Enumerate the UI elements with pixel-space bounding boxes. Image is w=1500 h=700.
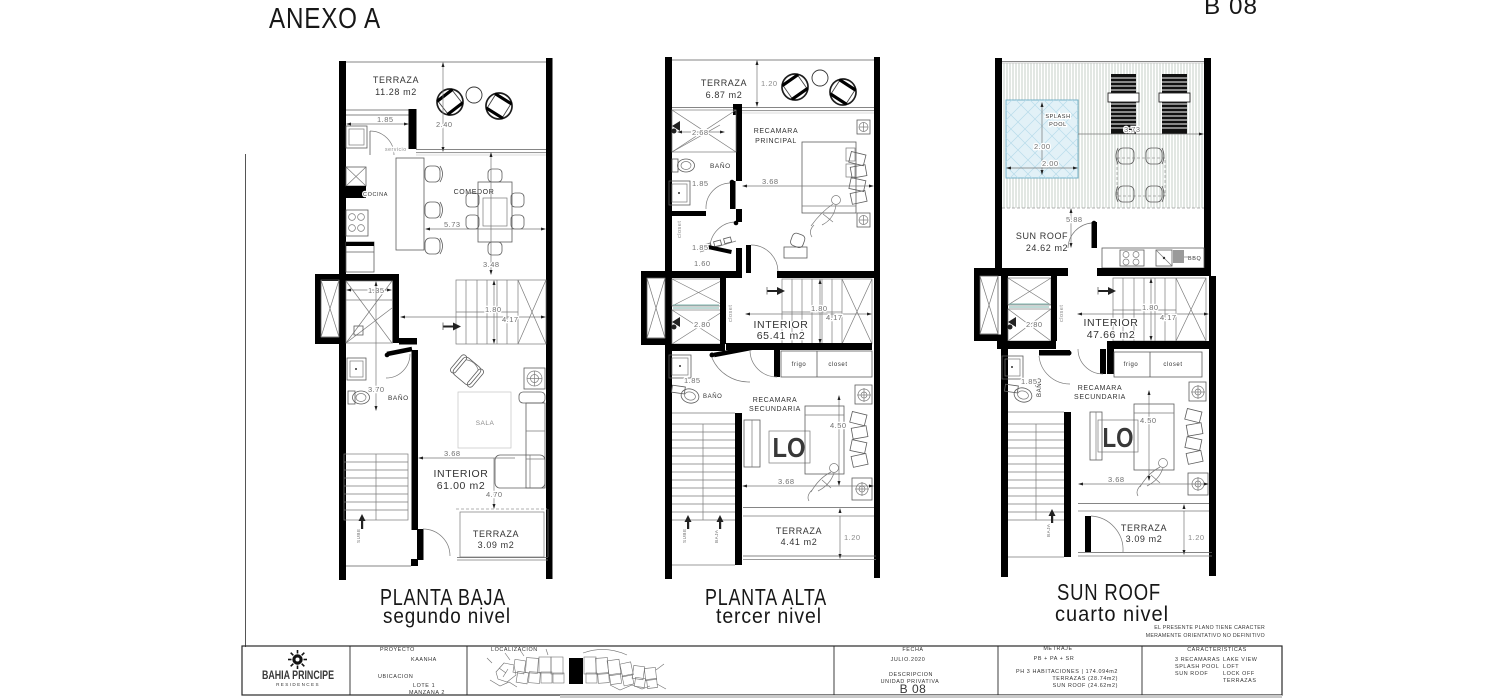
svg-text:INTERIOR: INTERIOR (434, 468, 489, 480)
svg-text:3.09 m2: 3.09 m2 (1126, 534, 1163, 544)
svg-text:6.87 m2: 6.87 m2 (706, 90, 743, 100)
svg-text:METRAJE: METRAJE (1043, 646, 1072, 652)
svg-text:RECAMARA: RECAMARA (1078, 385, 1122, 392)
svg-text:SPLASH POOL: SPLASH POOL (1175, 664, 1219, 670)
svg-text:61.00 m2: 61.00 m2 (437, 480, 486, 492)
svg-text:TERRAZA: TERRAZA (701, 78, 747, 88)
svg-text:COMEDOR: COMEDOR (454, 189, 495, 196)
svg-text:3.68: 3.68 (444, 449, 461, 458)
svg-text:2.00: 2.00 (1042, 159, 1059, 168)
svg-text:closet: closet (828, 362, 847, 368)
svg-text:JULIO.2020: JULIO.2020 (891, 657, 926, 663)
svg-text:ANEXO A: ANEXO A (269, 3, 381, 35)
svg-text:1.85: 1.85 (692, 243, 709, 252)
svg-text:LAKE VIEW: LAKE VIEW (1223, 657, 1258, 663)
svg-text:4.50: 4.50 (1140, 416, 1157, 425)
svg-text:segundo nivel: segundo nivel (383, 605, 511, 628)
svg-text:servicio: servicio (385, 147, 407, 153)
svg-text:4.17: 4.17 (826, 313, 843, 322)
svg-text:CARACTERISTICAS: CARACTERISTICAS (1187, 647, 1247, 653)
svg-text:1.85: 1.85 (692, 179, 709, 188)
svg-text:MERAMENTE ORIENTATIVO NO DEFIN: MERAMENTE ORIENTATIVO NO DEFINITIVO (1146, 633, 1265, 639)
svg-text:1.80: 1.80 (1142, 303, 1159, 312)
svg-text:3.70: 3.70 (368, 385, 385, 394)
svg-text:5.88: 5.88 (1066, 215, 1083, 224)
svg-text:KAANHA: KAANHA (411, 657, 437, 663)
svg-text:3.73: 3.73 (1124, 125, 1141, 134)
svg-text:INTERIOR: INTERIOR (1084, 317, 1139, 329)
svg-text:SUN ROOF: SUN ROOF (1057, 579, 1161, 605)
svg-text:BAÑO: BAÑO (703, 393, 722, 400)
svg-text:1.60: 1.60 (694, 259, 711, 268)
svg-text:5.73: 5.73 (444, 220, 461, 229)
svg-text:BBQ: BBQ (1188, 256, 1202, 262)
svg-text:TERRAZAS: TERRAZAS (1223, 678, 1257, 684)
svg-text:cuarto nivel: cuarto nivel (1055, 603, 1169, 626)
svg-text:closet: closet (1163, 362, 1182, 368)
svg-text:3.68: 3.68 (762, 177, 779, 186)
svg-text:1.85: 1.85 (377, 115, 394, 124)
svg-text:1.20: 1.20 (761, 79, 778, 88)
svg-text:closet: closet (1059, 305, 1065, 322)
svg-text:1.80: 1.80 (811, 304, 828, 313)
svg-text:BAÑO: BAÑO (710, 161, 731, 170)
svg-text:1.85: 1.85 (1021, 377, 1038, 386)
svg-text:TERRAZA: TERRAZA (1121, 523, 1167, 533)
svg-text:PB + PA + SR: PB + PA + SR (1034, 656, 1075, 662)
svg-text:47.66 m2: 47.66 m2 (1087, 329, 1136, 341)
svg-text:1.20: 1.20 (1188, 533, 1205, 542)
svg-text:BAJA: BAJA (714, 529, 719, 543)
svg-text:SECUNDARIA: SECUNDARIA (1074, 394, 1126, 401)
svg-text:frigo: frigo (792, 362, 807, 368)
svg-text:4.17: 4.17 (1160, 313, 1177, 322)
svg-text:2.80: 2.80 (694, 320, 711, 329)
svg-text:SUN ROOF: SUN ROOF (1175, 671, 1208, 677)
svg-text:SUN ROOF: SUN ROOF (1016, 231, 1068, 241)
svg-text:LO: LO (773, 432, 806, 463)
svg-text:closet: closet (728, 305, 734, 322)
svg-text:2.80: 2.80 (1026, 320, 1043, 329)
svg-text:BAJA: BAJA (1046, 523, 1051, 537)
svg-text:RECAMARA: RECAMARA (753, 397, 797, 404)
svg-text:SALA: SALA (476, 420, 495, 427)
svg-text:65.41 m2: 65.41 m2 (757, 330, 806, 342)
svg-text:3 RECAMARAS: 3 RECAMARAS (1175, 657, 1220, 663)
svg-text:B 08: B 08 (1204, 0, 1258, 20)
svg-text:3.68: 3.68 (1108, 475, 1125, 484)
svg-text:UBICACION: UBICACION (378, 674, 413, 680)
svg-text:DESCRIPCION: DESCRIPCION (889, 672, 933, 678)
svg-text:tercer nivel: tercer nivel (716, 605, 822, 628)
svg-text:FECHA: FECHA (902, 647, 923, 653)
svg-text:4.50: 4.50 (830, 421, 847, 430)
svg-text:PROYECTO: PROYECTO (380, 647, 415, 653)
svg-text:4.70: 4.70 (486, 490, 503, 499)
svg-text:SUBE: SUBE (356, 528, 361, 543)
svg-text:RECAMARA: RECAMARA (754, 128, 798, 135)
svg-text:SUN ROOF (24.62m2): SUN ROOF (24.62m2) (1053, 683, 1118, 689)
svg-text:TERRAZA: TERRAZA (473, 529, 519, 539)
svg-text:TERRAZA: TERRAZA (776, 526, 822, 536)
svg-text:SECUNDARIA: SECUNDARIA (749, 406, 801, 413)
svg-text:TERRAZA: TERRAZA (373, 75, 419, 85)
svg-text:3.68: 3.68 (778, 477, 795, 486)
svg-text:BAHIA PRINCIPE: BAHIA PRINCIPE (262, 668, 334, 682)
svg-text:11.28 m2: 11.28 m2 (375, 87, 417, 97)
svg-text:LOFT: LOFT (1223, 664, 1239, 670)
svg-text:frigo: frigo (1124, 362, 1139, 368)
svg-text:1.80: 1.80 (485, 305, 502, 314)
svg-text:TERRAZAS (28.74m2): TERRAZAS (28.74m2) (1052, 676, 1118, 682)
svg-text:2.40: 2.40 (436, 120, 453, 129)
svg-text:BAÑO: BAÑO (388, 393, 409, 402)
svg-text:closet: closet (677, 221, 683, 238)
svg-text:LOTE 1: LOTE 1 (413, 683, 435, 689)
svg-text:3.09 m2: 3.09 m2 (478, 540, 515, 550)
svg-text:LOCK OFF: LOCK OFF (1223, 671, 1255, 677)
svg-text:1.20: 1.20 (844, 533, 861, 542)
svg-text:COCINA: COCINA (363, 192, 388, 198)
svg-text:POOL: POOL (1049, 122, 1067, 128)
svg-text:B 08: B 08 (900, 682, 927, 696)
svg-text:PH 3 HABITACIONES | 174.094m2: PH 3 HABITACIONES | 174.094m2 (1016, 669, 1118, 675)
svg-text:PRINCIPAL: PRINCIPAL (755, 138, 797, 145)
svg-text:2.00: 2.00 (1034, 142, 1051, 151)
svg-text:1.85: 1.85 (684, 376, 701, 385)
svg-text:MANZANA 2: MANZANA 2 (409, 690, 445, 696)
svg-text:RESIDENCES: RESIDENCES (276, 682, 320, 687)
svg-text:24.62 m2: 24.62 m2 (1026, 243, 1068, 253)
svg-text:LO: LO (1103, 422, 1134, 453)
svg-text:2.68: 2.68 (692, 128, 709, 137)
svg-text:3.48: 3.48 (483, 260, 500, 269)
svg-text:EL PRESENTE PLANO TIENE CARACT: EL PRESENTE PLANO TIENE CARACTER (1154, 625, 1265, 631)
svg-text:4.41 m2: 4.41 m2 (781, 537, 818, 547)
svg-text:LOCALIZACION: LOCALIZACION (491, 647, 538, 653)
svg-text:4.17: 4.17 (502, 315, 519, 324)
svg-text:SUBE: SUBE (682, 528, 687, 543)
svg-text:SPLASH: SPLASH (1045, 114, 1070, 120)
